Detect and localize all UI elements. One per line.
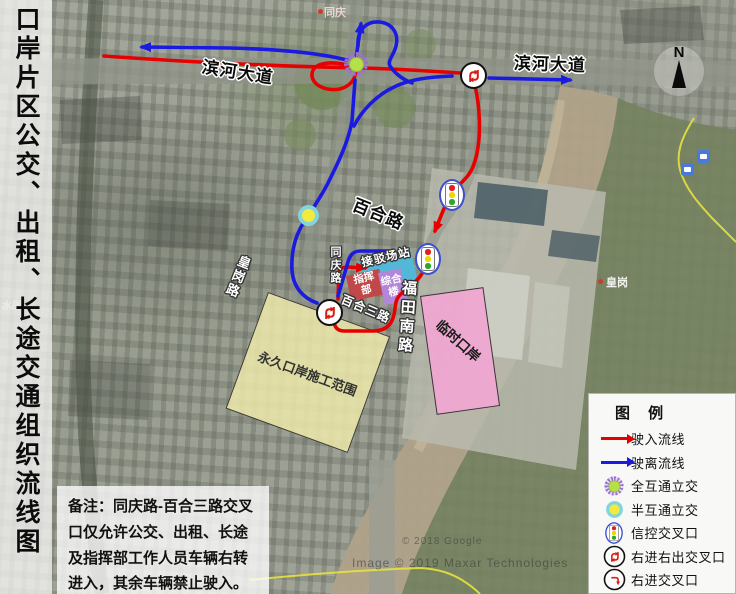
half-interchange-icon [298,205,319,226]
legend-panel: 图 例 驶入流线 驶离流线 全互通立交 半互通立交 信控交叉口 [588,393,736,594]
page-title: 口岸片区公交、出租、长途交通组织流线图 [8,0,44,594]
place-marker-icon [598,279,603,284]
road-label-tongqing: 同庆路 [327,246,343,285]
exit-flow-arrow-icon [597,461,631,464]
legend-item: 右进右出交叉口 [597,545,727,569]
right-in-right-out-glyph [465,67,483,85]
legend-item: 全互通立交 [597,474,727,498]
place-label-tongqing: 同庆 [324,4,346,20]
note-text: 备注：同庆路-百合三路交叉口仅允许公交、出租、长途及指挥部工作人员车辆右转进入，… [68,498,253,592]
traffic-signal-icon [439,179,465,211]
camera-poi-icon [697,150,710,163]
legend-item-label: 全互通立交 [631,476,699,495]
watermark-maxar: Image © 2019 Maxar Technologies [352,556,568,570]
legend-item: 驶离流线 [597,451,727,475]
legend-item-label: 右进右出交叉口 [631,547,726,566]
legend-item: 驶入流线 [597,427,727,451]
compass-n-label: N [654,46,704,60]
full-interchange-icon [344,52,368,76]
right-in-right-out-glyph [607,549,621,563]
title-strip: 口岸片区公交、出租、长途交通组织流线图 [0,0,52,594]
compass-needle-icon [672,60,686,88]
exit-flow-loop-ramp [358,22,412,83]
entry-flow-binhe [104,56,460,73]
legend-item-label: 半互通立交 [631,500,699,519]
right-in-right-out-icon [460,62,487,89]
legend-item: 半互通立交 [597,498,727,522]
exit-flow-northeast-branch [354,76,452,126]
right-in-glyph [607,573,621,587]
note-box: 备注：同庆路-百合三路交叉口仅允许公交、出租、长途及指挥部工作人员车辆右转进入，… [57,486,269,594]
place-marker-icon [318,9,323,14]
traffic-signal-icon [415,243,441,275]
right-in-icon [597,566,631,593]
camera-poi-icon [681,163,694,176]
place-label-huanggang: 皇岗 [606,274,628,290]
legend-item-label: 信控交叉口 [631,523,699,542]
entry-flow-arrow-icon [597,437,631,440]
legend-title: 图 例 [615,402,727,423]
road-label-binhe-east: 滨河大道 [514,49,587,76]
legend-item: 信控交叉口 [597,521,727,545]
traffic-flow-map: 永久口岸施工范围 临时口岸 指挥部 综合楼 接驳场站 [0,0,736,594]
legend-item-label: 驶离流线 [631,453,685,472]
full-interchange-icon [597,474,631,498]
exit-flow-east [489,78,570,80]
watermark-google: © 2018 Google [402,536,482,547]
legend-item-label: 驶入流线 [631,429,685,448]
north-compass: N [653,45,705,97]
legend-item: 右进交叉口 [597,568,727,592]
right-in-right-out-glyph [321,304,339,322]
legend-item-label: 右进交叉口 [631,570,699,589]
